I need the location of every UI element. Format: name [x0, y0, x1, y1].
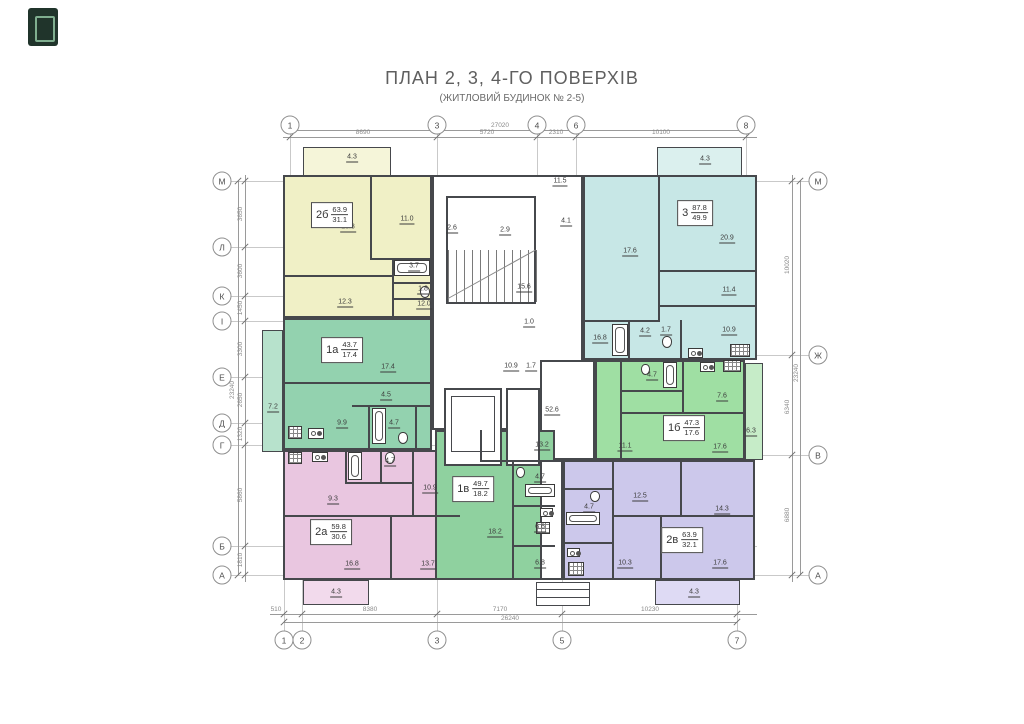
stair-tread: [464, 250, 465, 302]
stove-icon: [312, 452, 328, 462]
apartment-label: 2а59.830.6: [310, 519, 352, 545]
room-area-label: 12.3: [337, 299, 353, 308]
room-area-label: 16.8: [592, 335, 608, 344]
tub-icon: [525, 484, 555, 497]
room-area-label: 12.0: [416, 301, 432, 310]
wall: [563, 542, 612, 544]
wall: [620, 390, 682, 392]
dimension-text: 510: [271, 607, 282, 614]
room-area-label: 10.3: [617, 560, 633, 569]
room-area-label: 1.0: [523, 319, 535, 328]
stair-tread: [512, 250, 513, 302]
apartment-label: 1б47.317.6: [663, 415, 705, 441]
dimension-text: 10020: [785, 256, 792, 274]
room-area-label: 12.5: [632, 493, 648, 502]
stair-tread: [536, 250, 537, 302]
room: [262, 330, 283, 452]
wc-icon: [398, 432, 408, 444]
apartment-label: 1а43.717.4: [321, 337, 363, 363]
room-area-label: 20.9: [719, 235, 735, 244]
axis-grid-line: [757, 355, 809, 356]
room-area-label: 4.3: [346, 154, 358, 163]
dimension-text: 2310: [549, 130, 563, 137]
room-area-label: 14.3: [714, 506, 730, 515]
room-area-label: 52.6: [544, 407, 560, 416]
dimension-text: 23240: [794, 364, 801, 382]
dimension-text: 3650: [238, 207, 245, 221]
room-area-label: 10.9: [503, 363, 519, 372]
room-area-label: 18.2: [487, 529, 503, 538]
axis-marker: 6: [567, 116, 586, 135]
axis-marker: 3: [428, 116, 447, 135]
room-area-label: 11.4: [721, 287, 736, 296]
dimension-line: [245, 175, 246, 582]
wall: [352, 405, 432, 407]
axis-marker: 1: [275, 631, 294, 650]
apartment-areas: 47.317.6: [683, 418, 700, 438]
wall: [563, 488, 612, 490]
stair-tread: [504, 250, 505, 302]
apartment-areas: 63.932.1: [681, 530, 698, 550]
room-area-label: 16.8: [344, 561, 360, 570]
room-area-label: 6.3: [745, 428, 757, 437]
dimension-text: 2650: [238, 393, 245, 407]
room-area-label: 17.4: [380, 364, 396, 373]
axis-marker: Е: [213, 368, 232, 387]
room-area-label: 7.6: [716, 393, 728, 402]
axis-grid-line: [746, 134, 747, 176]
wall: [680, 460, 682, 515]
room-area-label: 17.6: [712, 560, 728, 569]
room-area-label: 13.2: [534, 442, 550, 451]
dimension-text: 1450: [238, 301, 245, 315]
room-area-label: 3.7: [408, 263, 420, 272]
apartment-id: 3: [682, 207, 688, 219]
axis-marker: 2: [293, 631, 312, 650]
wc-icon: [590, 491, 600, 502]
stove-icon: [540, 508, 553, 517]
apartment-areas: 59.830.6: [330, 522, 347, 542]
axis-marker: М: [213, 172, 232, 191]
apartment-label: 2в63.932.1: [661, 527, 703, 553]
apartment-id: 2б: [316, 209, 328, 221]
axis-grid-line: [284, 580, 285, 631]
apartment-areas: 87.849.9: [691, 203, 708, 223]
room-area-label: 9.3: [327, 496, 339, 505]
wall: [283, 275, 393, 277]
dimension-text: 6340: [785, 400, 792, 414]
room-area-label: 4.5: [380, 392, 392, 401]
dimension-line: [238, 181, 239, 575]
room-area-label: 2.6: [446, 225, 458, 234]
grate-icon: [568, 562, 584, 576]
wall: [583, 320, 660, 322]
apartment-id: 2а: [315, 526, 327, 538]
room: [536, 582, 590, 606]
wall: [345, 450, 347, 484]
axis-marker: В: [809, 446, 828, 465]
dimension-text: 3600: [238, 264, 245, 278]
wall: [412, 450, 414, 515]
axis-marker: 3: [428, 631, 447, 650]
stove-icon: [700, 362, 715, 372]
axis-marker: Г: [213, 436, 232, 455]
tub-icon: [612, 324, 628, 356]
room-area-label: 13.7: [420, 561, 436, 570]
apartment-label: 2б63.931.1: [311, 202, 353, 228]
stair-tread: [472, 250, 473, 302]
stair-tread: [480, 250, 481, 302]
grate-icon: [288, 452, 302, 464]
apartment-id: 1в: [457, 483, 469, 495]
dimension-text: 3300: [238, 342, 245, 356]
axis-marker: Б: [213, 537, 232, 556]
room-area-label: 4.7: [646, 372, 658, 381]
room-area-label: 4.7: [534, 474, 546, 483]
axis-marker: А: [809, 566, 828, 585]
stair-tread: [448, 250, 449, 302]
room: [506, 388, 540, 466]
dimension-text: 8380: [363, 607, 377, 614]
wall: [370, 175, 372, 260]
room-area-label: 6.8: [534, 560, 546, 569]
axis-marker: 4: [528, 116, 547, 135]
room-area-label: 2.9: [499, 227, 511, 236]
floor-plan-drawing: 4.318.811.03.71.812.312.02.62.911.54.115…: [0, 0, 1024, 724]
wall: [658, 270, 757, 272]
wall: [480, 460, 555, 462]
room-area-label: 4.2: [639, 328, 651, 337]
tub-icon: [372, 408, 386, 444]
room-area-label: 4.3: [330, 589, 342, 598]
axis-marker: І: [213, 312, 232, 331]
dimension-text: 10100: [652, 130, 670, 137]
axis-marker: 1: [281, 116, 300, 135]
wall: [380, 450, 382, 482]
dimension-text: 6880: [785, 508, 792, 522]
dimension-text: 1320: [238, 427, 245, 441]
tub-icon: [663, 362, 677, 388]
room-area-label: 11.1: [617, 443, 632, 452]
wall: [512, 460, 514, 580]
room-area-label: 1.8: [417, 286, 429, 295]
stove-icon: [567, 548, 580, 557]
apartment-label: 1в49.718.2: [452, 476, 494, 502]
apartment-id: 1б: [668, 422, 680, 434]
wall: [480, 430, 482, 460]
room-area-label: 6.6: [534, 524, 546, 533]
axis-marker: М: [809, 172, 828, 191]
room-area-label: 1.7: [525, 363, 537, 372]
axis-marker: Д: [213, 414, 232, 433]
room-area-label: 4.7: [583, 504, 595, 513]
axis-marker: 7: [728, 631, 747, 650]
floor-plan-page: ПЛАН 2, 3, 4-ГО ПОВЕРХІВ (ЖИТЛОВИЙ БУДИН…: [0, 0, 1024, 724]
stair-tread: [528, 250, 529, 302]
wall: [537, 589, 589, 590]
stair-tread: [496, 250, 497, 302]
room-area-label: 4.7: [384, 458, 396, 467]
room: [745, 363, 763, 460]
room-area-label: 11.0: [399, 216, 414, 225]
dimension-text: 7170: [493, 607, 507, 614]
wall: [658, 177, 660, 320]
axis-grid-line: [757, 455, 809, 456]
apartment-areas: 49.718.2: [472, 479, 489, 499]
room-area-label: 11.5: [552, 178, 567, 187]
room-area-label: 4.3: [688, 589, 700, 598]
wall: [415, 405, 417, 450]
wall: [658, 305, 757, 307]
grate-icon: [723, 360, 741, 372]
dimension-text: 23240: [230, 381, 237, 399]
apartment-areas: 63.931.1: [331, 205, 348, 225]
grate-icon: [288, 426, 302, 439]
axis-marker: А: [213, 566, 232, 585]
apartment-id: 2в: [666, 534, 678, 546]
axis-marker: Ж: [809, 346, 828, 365]
wall: [628, 320, 630, 360]
axis-marker: 5: [553, 631, 572, 650]
dimension-text: 8690: [356, 130, 370, 137]
wall: [612, 460, 614, 580]
room-area-label: 9.9: [336, 420, 348, 429]
dimension-text: 5720: [480, 130, 494, 137]
apartment-id: 1а: [326, 344, 338, 356]
wall: [537, 597, 589, 598]
dimension-text: 26240: [501, 616, 519, 623]
wc-icon: [662, 336, 672, 348]
room-area-label: 7.2: [267, 404, 279, 413]
wall: [345, 482, 412, 484]
wall: [390, 515, 392, 580]
room: [451, 396, 495, 452]
tub-icon: [566, 512, 600, 525]
room-area-label: 17.6: [622, 248, 638, 257]
stove-icon: [688, 348, 703, 358]
wall: [368, 405, 370, 450]
room: [283, 175, 432, 318]
axis-marker: Л: [213, 238, 232, 257]
room-area-label: 17.6: [712, 444, 728, 453]
room-area-label: 10.9: [422, 485, 438, 494]
dimension-text: 1810: [238, 553, 245, 567]
grate-icon: [730, 344, 750, 357]
wall: [283, 382, 432, 384]
stove-icon: [308, 428, 324, 439]
room-area-label: 4.7: [388, 420, 400, 429]
wall: [612, 515, 755, 517]
dimension-line: [283, 137, 757, 138]
axis-marker: 8: [737, 116, 756, 135]
wall: [620, 412, 745, 414]
wall: [682, 360, 684, 412]
room-area-label: 10.9: [721, 327, 737, 336]
room-area-label: 4.3: [699, 156, 711, 165]
room-area-label: 1.7: [660, 327, 672, 336]
axis-grid-line: [290, 134, 291, 176]
apartment-areas: 43.717.4: [341, 340, 358, 360]
wall: [680, 320, 682, 360]
wc-icon: [516, 467, 525, 478]
dimension-text: 5860: [238, 488, 245, 502]
dimension-text: 10230: [641, 607, 659, 614]
wall: [512, 545, 555, 547]
axis-marker: К: [213, 287, 232, 306]
room-area-label: 4.1: [560, 218, 572, 227]
wall: [512, 505, 555, 507]
tub-icon: [348, 452, 362, 480]
wall: [392, 282, 432, 284]
wall: [283, 515, 460, 517]
apartment-label: 387.849.9: [677, 200, 713, 226]
room-area-label: 15.6: [516, 284, 532, 293]
